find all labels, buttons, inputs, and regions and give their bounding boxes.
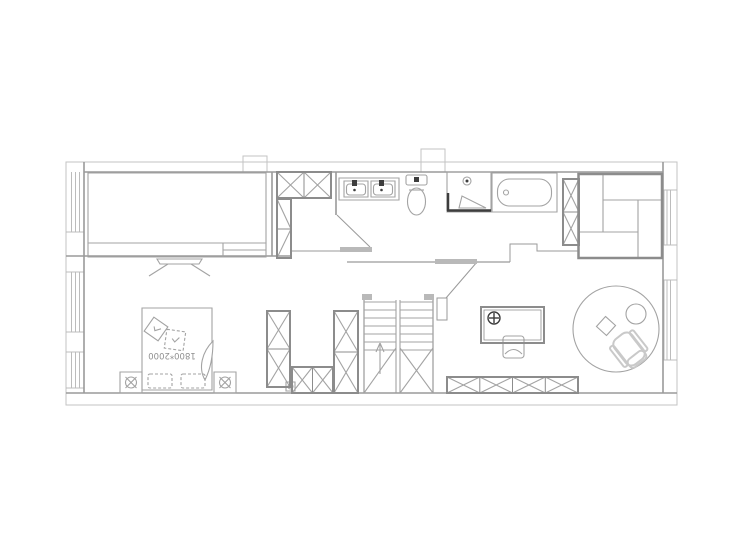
- faucet-left-icon: [352, 180, 357, 186]
- modular-sofa: [579, 174, 663, 258]
- bed-size-label: 1800*2000: [148, 350, 196, 360]
- double-bed: [142, 308, 213, 390]
- bed-size-label-group: 1800*2000: [148, 350, 196, 360]
- closet-bottom: [292, 367, 333, 393]
- throw-cushion-2: [164, 329, 185, 350]
- faucet-left-dot: [353, 189, 356, 192]
- nightstand-right: [214, 372, 236, 393]
- nightstand-left: [120, 372, 142, 393]
- window-left-2: [66, 272, 84, 332]
- toilet-flush-button: [414, 177, 419, 182]
- closet-right: [334, 311, 358, 393]
- top-shaft-left: [243, 156, 267, 172]
- top-shaft-right: [421, 149, 445, 172]
- faucet-right-icon: [379, 180, 384, 186]
- wall-pier-study: [437, 298, 447, 320]
- closet-left: [267, 311, 290, 387]
- pillow-left: [148, 374, 172, 388]
- throw-cushion-1: [144, 317, 168, 341]
- double-sink-vanity: [339, 178, 399, 200]
- wall-step: [510, 244, 578, 262]
- desk-lamp-icon: [488, 312, 500, 324]
- desk-chair: [503, 336, 524, 358]
- stair-cap-right: [424, 294, 434, 300]
- pouf: [626, 304, 646, 324]
- floor-plan-drawing: 1800*2000: [0, 0, 740, 550]
- faucet-right-dot: [380, 189, 383, 192]
- shower-enclosure: [447, 172, 491, 212]
- low-cabinet: [447, 377, 578, 393]
- lounge-chair: [607, 327, 652, 372]
- sofa-cushion-lines: [579, 174, 663, 258]
- shower-door: [459, 196, 486, 208]
- tv-stand: [149, 259, 210, 276]
- door-leaf-hall: [337, 215, 370, 247]
- stair-up-arrow-icon: [376, 343, 384, 374]
- upper-closet: [277, 172, 331, 258]
- floor-cushion: [596, 316, 615, 335]
- shower-head-dot: [466, 180, 469, 183]
- window-left-1: [66, 172, 84, 232]
- door-sill-hall: [340, 247, 372, 252]
- window-right-1: [663, 190, 677, 245]
- door-sill-study: [435, 259, 477, 264]
- pillow-right: [181, 374, 205, 388]
- stair-cap-left: [362, 294, 372, 300]
- tall-cabinet: [563, 179, 579, 245]
- window-left-3: [66, 352, 84, 388]
- wardrobe: [88, 173, 266, 257]
- bathtub: [492, 173, 557, 212]
- window-right-2: [663, 280, 677, 360]
- door-leaf-study: [446, 262, 477, 298]
- staircase-up: [364, 302, 433, 393]
- door-openings: [340, 247, 477, 300]
- floor-plan-page: 1800*2000: [0, 0, 740, 550]
- dark-details: [447, 193, 500, 324]
- dark-fills: [352, 177, 469, 191]
